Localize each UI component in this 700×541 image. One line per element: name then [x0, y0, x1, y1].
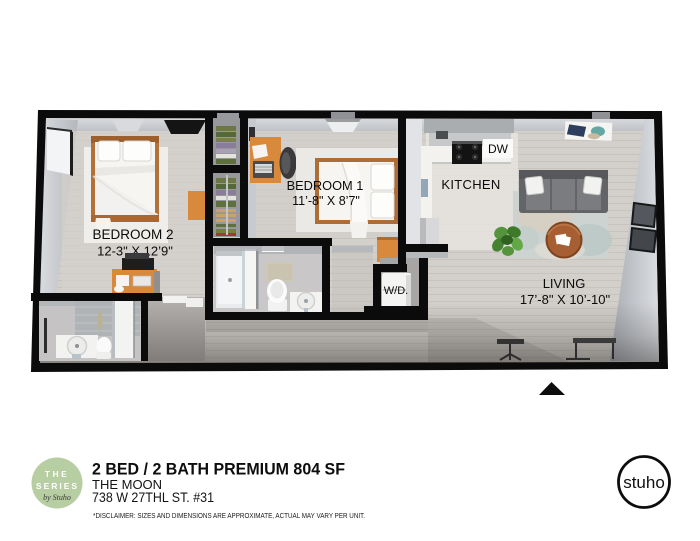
- svg-text:KITCHEN: KITCHEN: [441, 177, 500, 192]
- svg-text:11’-8" X 8’7": 11’-8" X 8’7": [292, 194, 360, 208]
- svg-text:2 BED / 2 BATH PREMIUM 804 SF: 2 BED / 2 BATH PREMIUM 804 SF: [92, 461, 345, 479]
- svg-text:stuho: stuho: [623, 473, 665, 492]
- svg-text:BEDROOM 1: BEDROOM 1: [287, 178, 364, 193]
- svg-text:SERIES: SERIES: [36, 481, 79, 491]
- svg-text:by Stuho: by Stuho: [43, 493, 71, 502]
- svg-text:*DISCLAIMER: SIZES AND DIMENSI: *DISCLAIMER: SIZES AND DIMENSIONS ARE AP…: [93, 513, 365, 520]
- svg-text:THE: THE: [45, 469, 70, 479]
- svg-text:W/D.: W/D.: [384, 285, 408, 297]
- svg-text:738 W 27THL ST. #31: 738 W 27THL ST. #31: [92, 490, 214, 505]
- svg-text:DW: DW: [488, 142, 509, 156]
- svg-text:BEDROOM 2: BEDROOM 2: [92, 227, 173, 242]
- svg-text:LIVING: LIVING: [543, 276, 586, 291]
